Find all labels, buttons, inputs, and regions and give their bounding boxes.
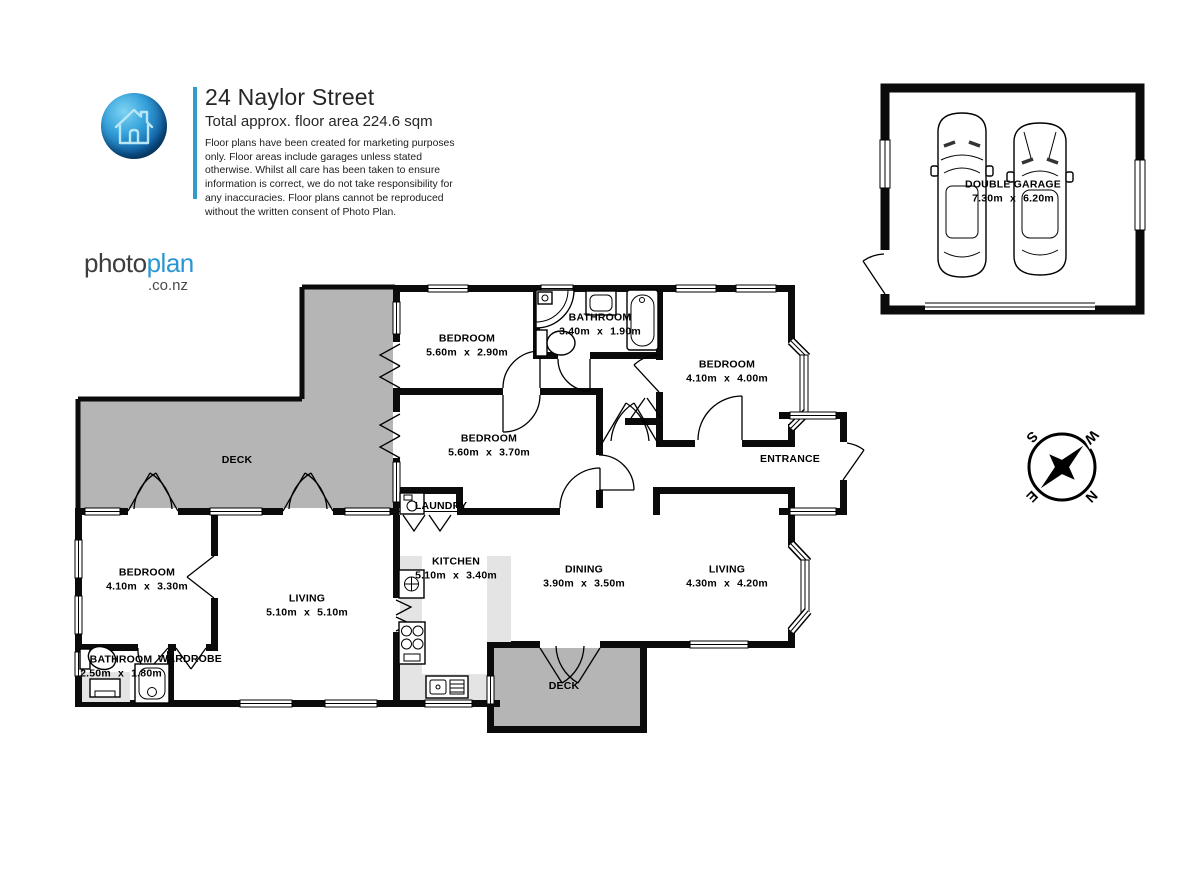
bay-window-living2 — [791, 544, 809, 631]
room-label-bathroom1: BATHROOM 3.40m x 1.90m — [559, 311, 641, 338]
compass-w: W — [1081, 427, 1102, 448]
deck-upper-shape — [78, 287, 397, 512]
room-label-entrance: ENTRANCE — [760, 453, 820, 467]
room-label-laundry: LAUNDRY — [415, 500, 467, 514]
room-label-bedroom3: BEDROOM 5.60m x 3.70m — [448, 432, 530, 459]
room-label-kitchen: KITCHEN 5.10m x 3.40m — [415, 555, 497, 582]
floorplan-page: photoplan .co.nz 24 Naylor Street Total … — [0, 0, 1200, 891]
room-label-deck-upper: DECK — [222, 454, 253, 468]
room-label-bedroom4: BEDROOM 4.10m x 3.30m — [106, 566, 188, 593]
compass-icon: N E S W — [994, 397, 1132, 535]
floorplan-canvas: N E S W — [0, 0, 1200, 891]
room-label-deck-lower: DECK — [549, 680, 580, 694]
room-label-wardrobe: WARDROBE — [158, 653, 222, 667]
room-label-bedroom1: BEDROOM 5.60m x 2.90m — [426, 332, 508, 359]
room-label-living1: LIVING 5.10m x 5.10m — [266, 592, 348, 619]
room-label-garage: DOUBLE GARAGE 7.30m x 6.20m — [965, 178, 1061, 205]
room-label-dining: DINING 3.90m x 3.50m — [543, 563, 625, 590]
room-label-bedroom2: BEDROOM 4.10m x 4.00m — [686, 358, 768, 385]
room-label-living2: LIVING 4.30m x 4.20m — [686, 563, 768, 590]
compass-s: S — [1023, 428, 1041, 446]
room-label-bathroom2: BATHROOM 2.50m x 1.80m — [80, 653, 162, 680]
